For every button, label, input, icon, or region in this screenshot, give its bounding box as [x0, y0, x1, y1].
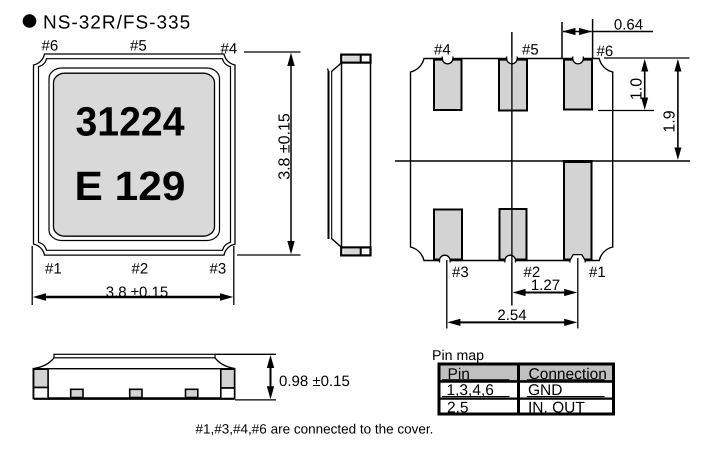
svg-text:31224: 31224: [76, 99, 185, 145]
svg-text:1.9: 1.9: [662, 110, 679, 132]
svg-text:#1: #1: [45, 261, 62, 278]
svg-text:#1,#3,#4,#6 are connected to t: #1,#3,#4,#6 are connected to the cover.: [196, 422, 434, 437]
svg-text:#6: #6: [42, 37, 59, 54]
svg-text:#4: #4: [221, 40, 238, 57]
svg-text:Pin: Pin: [448, 366, 470, 383]
svg-text:#5: #5: [522, 42, 539, 59]
svg-text:2,5: 2,5: [447, 400, 469, 417]
svg-text:#4: #4: [434, 42, 451, 59]
svg-text:Pin map: Pin map: [432, 348, 484, 364]
svg-text:#1: #1: [589, 264, 606, 281]
svg-text:2.54: 2.54: [497, 307, 526, 324]
svg-text:E 129: E 129: [75, 163, 186, 209]
svg-text:IN, OUT: IN, OUT: [528, 400, 585, 417]
svg-text:3.8 ±0.15: 3.8 ±0.15: [106, 284, 168, 301]
svg-text:0.64: 0.64: [614, 17, 643, 34]
svg-text:Connection: Connection: [529, 366, 607, 383]
svg-text:#2: #2: [132, 261, 149, 278]
svg-text:#3: #3: [452, 264, 469, 281]
svg-text:#3: #3: [210, 261, 227, 278]
svg-text:NS-32R/FS-335: NS-32R/FS-335: [43, 13, 191, 34]
svg-text:1.0: 1.0: [629, 78, 646, 100]
svg-text:#5: #5: [130, 37, 147, 54]
svg-text:1.27: 1.27: [531, 277, 560, 294]
svg-text:0.98 ±0.15: 0.98 ±0.15: [279, 373, 350, 390]
svg-text:3.8 ±0.15: 3.8 ±0.15: [277, 113, 294, 180]
